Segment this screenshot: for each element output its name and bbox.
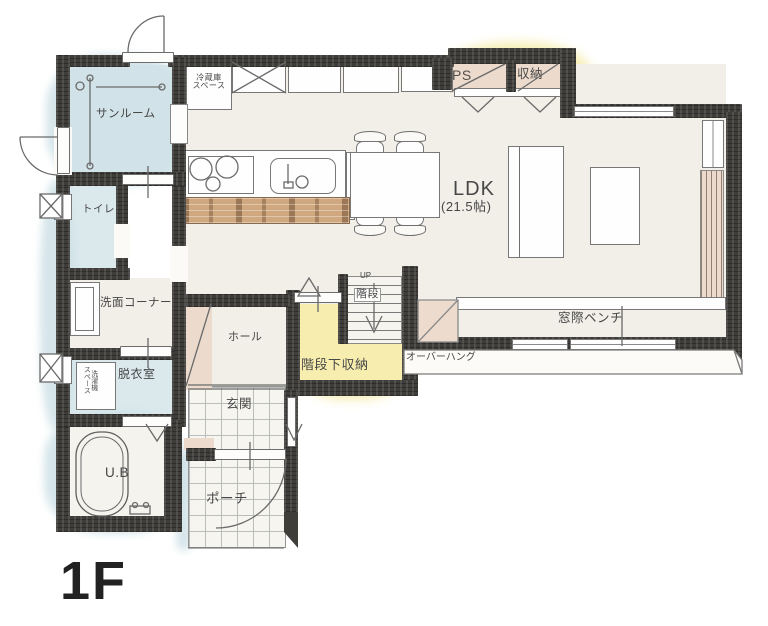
wall: [286, 380, 418, 396]
washing-machine-space: 洗濯機 スペース: [76, 362, 116, 410]
window: [702, 120, 724, 168]
toilet-door-gap: [114, 224, 130, 258]
dining-table: [350, 152, 440, 218]
cooktop: [188, 156, 254, 194]
overhang-label: オーバーハング: [406, 353, 476, 364]
dressing-label: 脱衣室: [118, 368, 156, 381]
storage-label: 収納: [517, 68, 543, 81]
window: [574, 106, 674, 117]
wall: [506, 60, 516, 92]
ps-label: PS: [452, 68, 472, 83]
wall: [402, 266, 418, 396]
sliding-door: [122, 174, 174, 185]
sliding-door: [287, 397, 296, 447]
floor-plan-page: { "labels": { "floor": "1F", "sunroom": …: [0, 0, 768, 626]
ldk-label: LDK: [453, 179, 495, 200]
wall: [432, 58, 452, 90]
shoe-closet: [184, 302, 212, 390]
entrance-label: 玄関: [226, 398, 252, 411]
window: [54, 194, 72, 220]
fridge-space-label: 冷蔵庫 スペース: [190, 74, 228, 91]
hall-label: ホール: [228, 332, 263, 344]
entrance-door-leaf: [214, 449, 286, 460]
porch-label: ポーチ: [206, 492, 248, 506]
toilet-floor: [68, 184, 118, 270]
toilet-label: トイレ: [82, 204, 115, 215]
folding-door: [122, 416, 172, 427]
kitchen-wood-counter: [182, 197, 350, 224]
wall: [176, 55, 454, 67]
wall: [56, 516, 182, 532]
bath-label: U.B: [105, 466, 129, 480]
sliding-door: [120, 346, 172, 357]
sofa-backrest-line: [519, 147, 520, 257]
living-table: [590, 167, 640, 245]
bench-label: 窓際ベンチ: [558, 312, 623, 325]
under-stairs-label: 階段下収納: [301, 358, 369, 372]
sofa: [508, 146, 564, 258]
chair-bottom-right: [394, 225, 426, 236]
stairs-up-label: UP: [360, 272, 371, 280]
exterior-door-leaf: [57, 127, 70, 174]
sunroom-top-door-leaf: [122, 52, 174, 63]
window-bench: [456, 297, 726, 310]
window: [54, 356, 72, 384]
window: [570, 339, 676, 350]
sliding-door: [294, 292, 342, 303]
wall: [186, 448, 216, 461]
washbasin-cabinet: [70, 282, 100, 336]
washroom-label: 洗面コーナー: [100, 297, 172, 309]
floor-title: 1F: [60, 550, 127, 612]
washing-machine-label: 洗濯機 スペース: [83, 366, 98, 394]
cupboard-2: [343, 64, 399, 93]
window: [512, 339, 568, 350]
stairs-treads: [346, 276, 402, 344]
wall: [726, 112, 742, 360]
kitchen-sink: [270, 158, 336, 194]
sunroom-label: サンルーム: [96, 108, 156, 120]
wall: [56, 268, 130, 280]
tv-board: [700, 170, 724, 300]
door-gap: [170, 246, 188, 282]
washbasin-door: [75, 287, 94, 331]
cupboard-1: [288, 64, 341, 93]
stairs-label: 階段: [354, 288, 381, 302]
wall: [284, 448, 298, 512]
ldk-size-label: (21.5帖): [441, 200, 491, 214]
chair-bottom-left: [354, 225, 386, 236]
wall: [338, 274, 348, 344]
wall: [186, 294, 290, 307]
pass-gap: [170, 104, 188, 144]
